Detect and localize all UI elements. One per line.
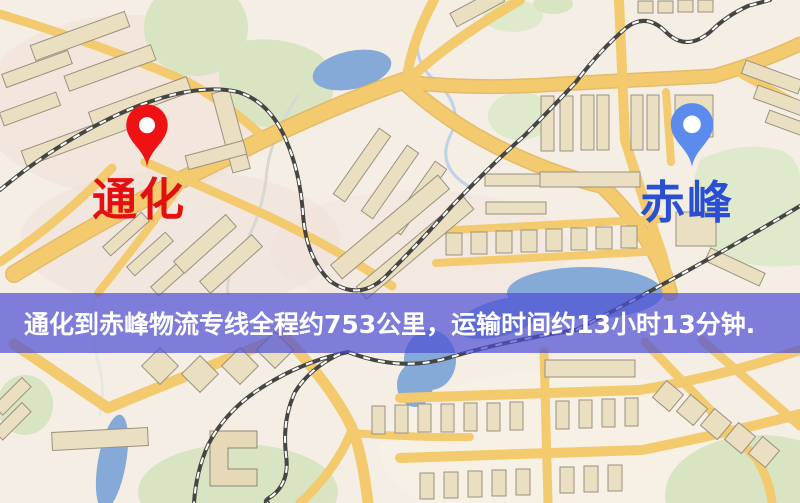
route-banner-text: 通化到赤峰物流专线全程约753公里，运输时间约13小时13分钟. [0, 305, 755, 341]
origin-pin-icon [124, 103, 170, 168]
map-background [0, 0, 800, 503]
origin-pin-hole [139, 117, 155, 133]
destination-label: 赤峰 [640, 180, 734, 226]
route-banner: 通化到赤峰物流专线全程约753公里，运输时间约13小时13分钟. [0, 293, 800, 353]
destination-pin-icon [667, 102, 717, 168]
destination-pin-hole [683, 116, 701, 134]
logistics-route-map: 通化 赤峰 通化到赤峰物流专线全程约753公里，运输时间约13小时13分钟. [0, 0, 800, 503]
origin-label: 通化 [92, 177, 186, 223]
destination-pin-shape [671, 103, 713, 167]
origin-pin-shape [126, 104, 167, 166]
